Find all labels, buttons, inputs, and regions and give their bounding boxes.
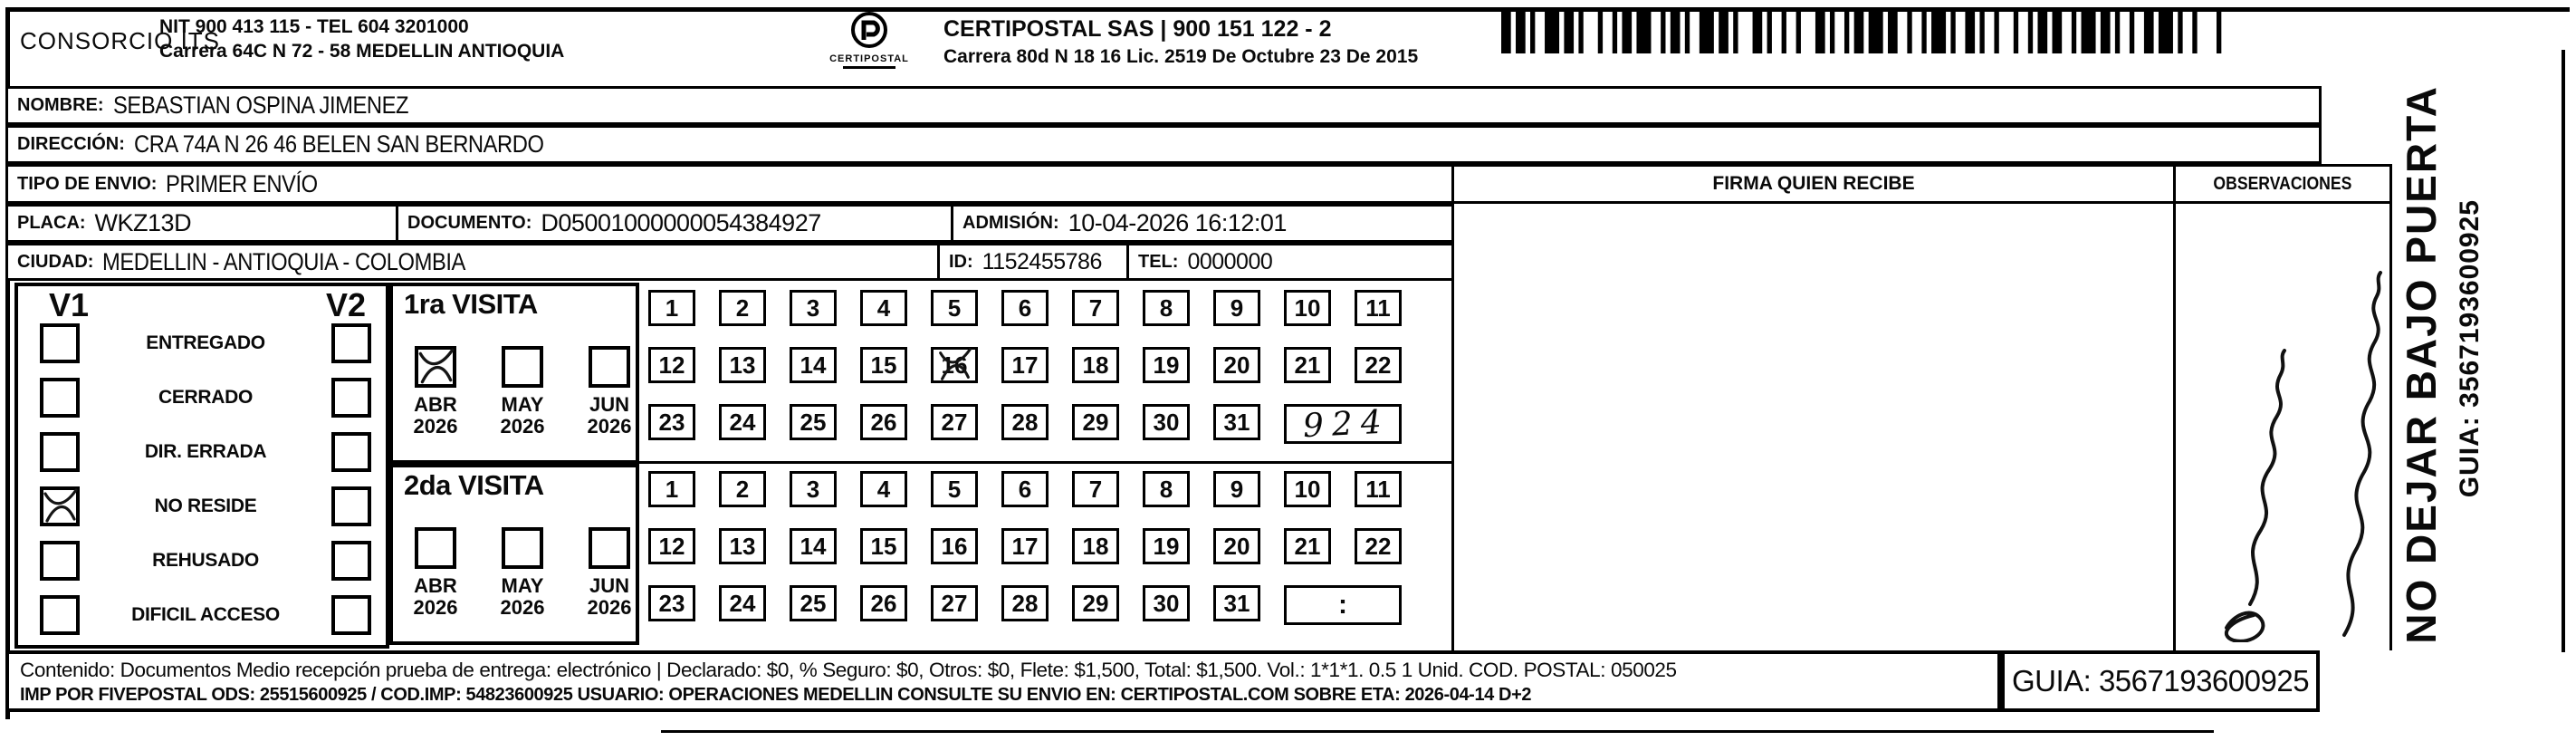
visit-1-box: 1ra VISITA ABR2026MAY2026JUN2026	[389, 283, 639, 464]
documento-value: D05001000000054384927	[541, 209, 820, 237]
placa-cell: PLACA: WKZ13D	[5, 204, 398, 243]
month-label: JUN2026	[588, 394, 632, 438]
postal-delivery-form-scan: CONSORCIO ITS NIT 900 413 115 - TEL 604 …	[0, 0, 2576, 741]
placa-value: WKZ13D	[95, 209, 192, 237]
day-2: 2	[719, 290, 766, 326]
day-16: 16	[931, 528, 978, 564]
month-label: JUN2026	[588, 575, 632, 619]
status-label-3: NO RESIDE	[80, 496, 331, 517]
checkbox-v2-4	[331, 541, 371, 581]
status-row-1: CERRADO	[40, 377, 371, 419]
tel-label: TEL:	[1138, 252, 1178, 273]
day-5: 5	[931, 290, 978, 326]
admision-cell: ADMISIÓN: 10-04-2026 16:12:01	[951, 204, 1454, 243]
visit-2-months: ABR2026MAY2026JUN2026	[406, 527, 639, 619]
day-row-1: 1213141516171819202122	[648, 528, 1402, 564]
day-10: 10	[1284, 290, 1331, 326]
day-9: 9	[1213, 471, 1260, 507]
footer-imp-line: IMP POR FIVEPOSTAL ODS: 25515600925 / CO…	[20, 685, 1531, 706]
day-20: 20	[1213, 528, 1260, 564]
month-label: ABR2026	[414, 575, 458, 619]
visit-1-months: ABR2026MAY2026JUN2026	[406, 346, 639, 438]
day-11: 11	[1355, 471, 1402, 507]
status-label-1: CERRADO	[80, 387, 331, 409]
id-label: ID:	[949, 252, 973, 273]
day-6: 6	[1001, 471, 1049, 507]
checkbox-v1-4	[40, 541, 80, 581]
month-label: MAY2026	[501, 394, 545, 438]
guia-number-box: GUIA: 3567193600925	[2001, 650, 2320, 712]
certipostal-logo-icon	[839, 11, 899, 51]
observaciones-area	[2173, 204, 2392, 650]
checkbox-v1-1	[40, 378, 80, 418]
day-6: 6	[1001, 290, 1049, 326]
day-3: 3	[790, 290, 837, 326]
handwritten-entry: 924	[1295, 403, 1391, 445]
day-18: 18	[1072, 528, 1119, 564]
nombre-value: SEBASTIAN OSPINA JIMENEZ	[113, 91, 408, 120]
day-5: 5	[931, 471, 978, 507]
company-nit-line: NIT 900 413 115 - TEL 604 3201000	[159, 14, 564, 39]
day-7: 7	[1072, 290, 1119, 326]
tel-cell: TEL: 0000000	[1126, 243, 1454, 281]
day-row-2: 232425262728293031:	[648, 585, 1402, 625]
company-info: NIT 900 413 115 - TEL 604 3201000 Carrer…	[159, 14, 564, 63]
status-row-4: REHUSADO	[40, 540, 371, 582]
certipostal-logo-tagline	[843, 66, 895, 69]
day-crossout-mark	[934, 350, 975, 380]
footer-content-line: Contenido: Documentos Medio recepción pr…	[20, 659, 1677, 682]
day-30: 30	[1143, 404, 1190, 440]
status-panel: V1 V2 ENTREGADOCERRADODIR. ERRADANO RESI…	[14, 283, 389, 649]
month-jun: JUN2026	[579, 527, 639, 619]
month-checkbox-may	[502, 346, 543, 388]
status-row-5: DIFICIL ACCESO	[40, 594, 371, 636]
company-address-line: Carrera 64C N 72 - 58 MEDELLIN ANTIOQUIA	[159, 39, 564, 63]
month-checkbox-jun	[589, 527, 630, 569]
checkbox-v2-1	[331, 378, 371, 418]
day-1: 1	[648, 290, 695, 326]
operator-info: CERTIPOSTAL SAS | 900 151 122 - 2 Carrer…	[943, 16, 1418, 68]
visit-1-title: 1ra VISITA	[404, 288, 538, 321]
certipostal-logo-text: CERTIPOSTAL	[826, 53, 913, 64]
day-26: 26	[860, 404, 907, 440]
v2-header: V2	[326, 286, 366, 324]
extra-cell-text: :	[1338, 590, 1347, 621]
day-17: 17	[1001, 528, 1049, 564]
day-27: 27	[931, 585, 978, 621]
day-14: 14	[790, 528, 837, 564]
tipo-envio-value: PRIMER ENVÍO	[166, 170, 318, 198]
day-2: 2	[719, 471, 766, 507]
scan-page-edge-line	[661, 730, 2214, 733]
month-checkbox-jun	[589, 346, 630, 388]
status-label-5: DIFICIL ACCESO	[80, 604, 331, 626]
admision-value: 10-04-2026 16:12:01	[1068, 209, 1287, 237]
form-border-right	[2562, 50, 2565, 652]
status-row-3: NO RESIDE	[40, 486, 371, 527]
month-label: MAY2026	[501, 575, 545, 619]
day-20: 20	[1213, 347, 1260, 383]
row-tipo-envio: TIPO DE ENVIO: PRIMER ENVÍO	[5, 164, 1454, 204]
tel-value: 0000000	[1187, 249, 1272, 275]
month-label: ABR2026	[414, 394, 458, 438]
documento-label: DOCUMENTO:	[407, 213, 531, 234]
v1-header: V1	[49, 286, 89, 324]
day-23: 23	[648, 585, 695, 621]
status-label-0: ENTREGADO	[80, 332, 331, 354]
month-abr: ABR2026	[406, 527, 465, 619]
documento-cell: DOCUMENTO: D05001000000054384927	[396, 204, 953, 243]
day-7: 7	[1072, 471, 1119, 507]
checkbox-v1-0	[40, 323, 80, 363]
day-3: 3	[790, 471, 837, 507]
month-may: MAY2026	[493, 346, 552, 438]
operator-address-line: Carrera 80d N 18 16 Lic. 2519 De Octubre…	[943, 46, 1418, 68]
day-row-1: 1213141516171819202122	[648, 347, 1402, 383]
visit-2-box: 2da VISITA ABR2026MAY2026JUN2026	[389, 464, 639, 645]
month-checkbox-abr	[415, 527, 456, 569]
day-16: 16	[931, 347, 978, 383]
day-17: 17	[1001, 347, 1049, 383]
day-21: 21	[1284, 528, 1331, 564]
day-22: 22	[1355, 347, 1402, 383]
extra-cell: :	[1284, 585, 1402, 625]
day-25: 25	[790, 585, 837, 621]
day-19: 19	[1143, 528, 1190, 564]
tipo-envio-label: TIPO DE ENVIO:	[17, 174, 157, 195]
side-guia-text: GUIA: 3567193600925	[2455, 199, 2485, 497]
checkbox-v1-3	[40, 486, 80, 526]
day-12: 12	[648, 347, 695, 383]
day-28: 28	[1001, 404, 1049, 440]
month-jun: JUN2026	[579, 346, 639, 438]
day-4: 4	[860, 471, 907, 507]
visit-2-day-grid: 1234567891011121314151617181920212223242…	[639, 464, 1452, 643]
ciudad-label: CIUDAD:	[17, 252, 93, 273]
day-23: 23	[648, 404, 695, 440]
day-12: 12	[648, 528, 695, 564]
firma-area	[1451, 204, 2175, 650]
day-13: 13	[719, 347, 766, 383]
side-warning-banner: NO DEJAR BAJO PUERTA	[2395, 86, 2447, 643]
day-13: 13	[719, 528, 766, 564]
day-29: 29	[1072, 404, 1119, 440]
status-row-0: ENTREGADO	[40, 322, 371, 364]
day-22: 22	[1355, 528, 1402, 564]
row-nombre: NOMBRE: SEBASTIAN OSPINA JIMENEZ	[5, 86, 2322, 125]
day-30: 30	[1143, 585, 1190, 621]
day-31: 31	[1213, 585, 1260, 621]
certipostal-logo: CERTIPOSTAL	[826, 11, 913, 69]
checkbox-v2-0	[331, 323, 371, 363]
day-19: 19	[1143, 347, 1190, 383]
day-24: 24	[719, 404, 766, 440]
direccion-label: DIRECCIÓN:	[17, 134, 125, 155]
checkbox-v1-5	[40, 595, 80, 635]
month-checkbox-abr	[415, 346, 456, 388]
day-31: 31	[1213, 404, 1260, 440]
nombre-label: NOMBRE:	[17, 95, 104, 116]
id-value: 1152455786	[982, 249, 1102, 275]
operator-name-line: CERTIPOSTAL SAS | 900 151 122 - 2	[943, 16, 1418, 43]
month-checkbox-may	[502, 527, 543, 569]
day-4: 4	[860, 290, 907, 326]
month-abr: ABR2026	[406, 346, 465, 438]
day-24: 24	[719, 585, 766, 621]
day-row-0: 1234567891011	[648, 290, 1402, 326]
day-18: 18	[1072, 347, 1119, 383]
observaciones-header-label: OBSERVACIONES	[2214, 174, 2352, 195]
status-label-4: REHUSADO	[80, 550, 331, 572]
day-10: 10	[1284, 471, 1331, 507]
firma-header-label: FIRMA QUIEN RECIBE	[1712, 173, 1914, 195]
guia-number-text: GUIA: 3567193600925	[2012, 664, 2309, 698]
id-cell: ID: 1152455786	[937, 243, 1129, 281]
day-15: 15	[860, 347, 907, 383]
ciudad-cell: CIUDAD: MEDELLIN - ANTIOQUIA - COLOMBIA	[5, 243, 940, 281]
day-25: 25	[790, 404, 837, 440]
day-29: 29	[1072, 585, 1119, 621]
day-11: 11	[1355, 290, 1402, 326]
checkbox-v2-2	[331, 432, 371, 472]
handwritten-note	[2183, 226, 2387, 642]
day-14: 14	[790, 347, 837, 383]
side-guia-banner: GUIA: 3567193600925	[2450, 136, 2490, 562]
admision-label: ADMISIÓN:	[962, 213, 1059, 234]
visit-1-day-grid: 1234567891011121314151617181920212223242…	[639, 283, 1452, 462]
checkbox-v1-2	[40, 432, 80, 472]
day-8: 8	[1143, 290, 1190, 326]
day-1: 1	[648, 471, 695, 507]
checkbox-v2-3	[331, 486, 371, 526]
direccion-value: CRA 74A N 26 46 BELEN SAN BERNARDO	[134, 130, 544, 159]
firma-header: FIRMA QUIEN RECIBE	[1451, 164, 2176, 204]
day-row-2: 232425262728293031924	[648, 404, 1402, 444]
day-15: 15	[860, 528, 907, 564]
observaciones-header: OBSERVACIONES	[2173, 164, 2392, 204]
placa-label: PLACA:	[17, 213, 86, 234]
status-row-2: DIR. ERRADA	[40, 431, 371, 473]
day-row-0: 1234567891011	[648, 471, 1402, 507]
day-28: 28	[1001, 585, 1049, 621]
row-direccion: DIRECCIÓN: CRA 74A N 26 46 BELEN SAN BER…	[5, 125, 2322, 164]
ciudad-value: MEDELLIN - ANTIOQUIA - COLOMBIA	[102, 248, 465, 276]
footer-details-box: Contenido: Documentos Medio recepción pr…	[5, 650, 2001, 712]
month-may: MAY2026	[493, 527, 552, 619]
day-27: 27	[931, 404, 978, 440]
status-label-2: DIR. ERRADA	[80, 441, 331, 463]
side-warning-text: NO DEJAR BAJO PUERTA	[2397, 85, 2446, 644]
barcode	[1501, 11, 2231, 53]
checkbox-v2-5	[331, 595, 371, 635]
day-9: 9	[1213, 290, 1260, 326]
day-26: 26	[860, 585, 907, 621]
extra-cell: 924	[1284, 404, 1402, 444]
day-8: 8	[1143, 471, 1190, 507]
visit-2-title: 2da VISITA	[404, 469, 544, 502]
day-21: 21	[1284, 347, 1331, 383]
